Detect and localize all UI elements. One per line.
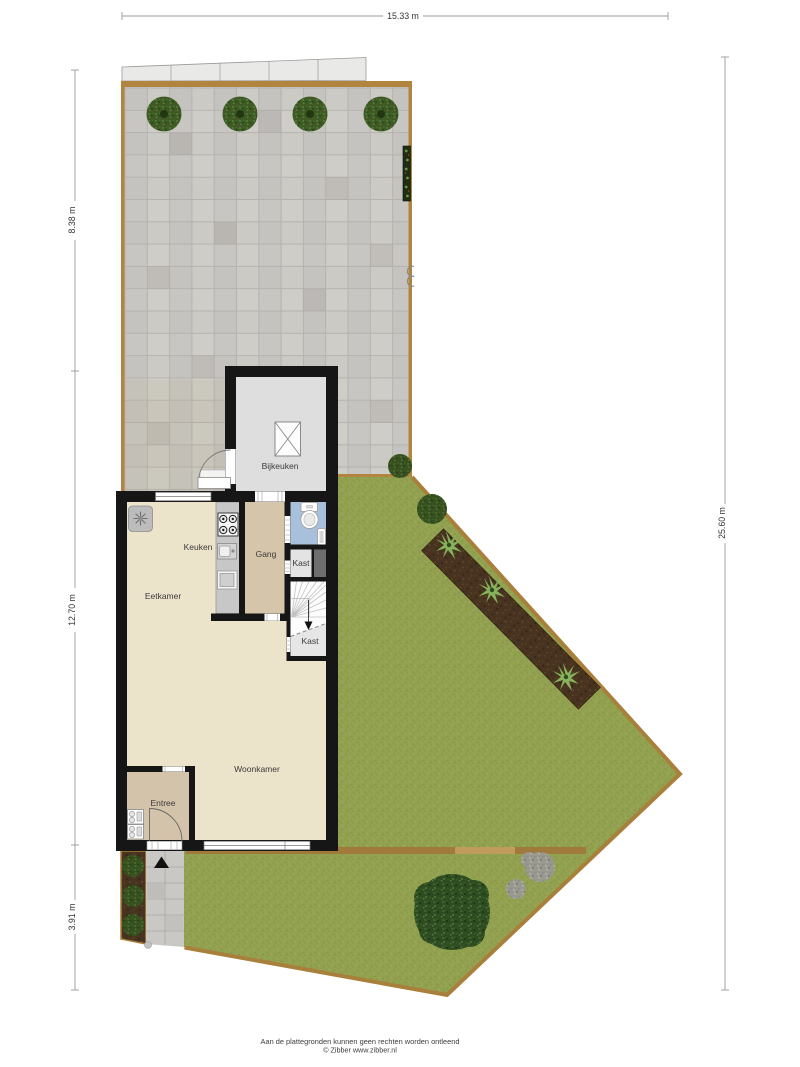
svg-text:8.38 m: 8.38 m [67, 207, 77, 234]
svg-text:3.91 m: 3.91 m [67, 904, 77, 931]
svg-text:© Zibber www.zibber.nl: © Zibber www.zibber.nl [323, 1046, 397, 1055]
svg-text:15.33 m: 15.33 m [387, 11, 419, 21]
svg-text:Kast: Kast [301, 636, 319, 646]
svg-text:Entree: Entree [150, 798, 175, 808]
svg-text:Woonkamer: Woonkamer [234, 764, 280, 774]
svg-text:Gang: Gang [256, 549, 277, 559]
svg-text:Bijkeuken: Bijkeuken [262, 461, 299, 471]
svg-text:12.70 m: 12.70 m [67, 594, 77, 626]
svg-text:Kast: Kast [292, 558, 310, 568]
svg-text:25.60 m: 25.60 m [717, 507, 727, 539]
svg-text:Keuken: Keuken [184, 542, 213, 552]
svg-text:Eetkamer: Eetkamer [145, 591, 182, 601]
